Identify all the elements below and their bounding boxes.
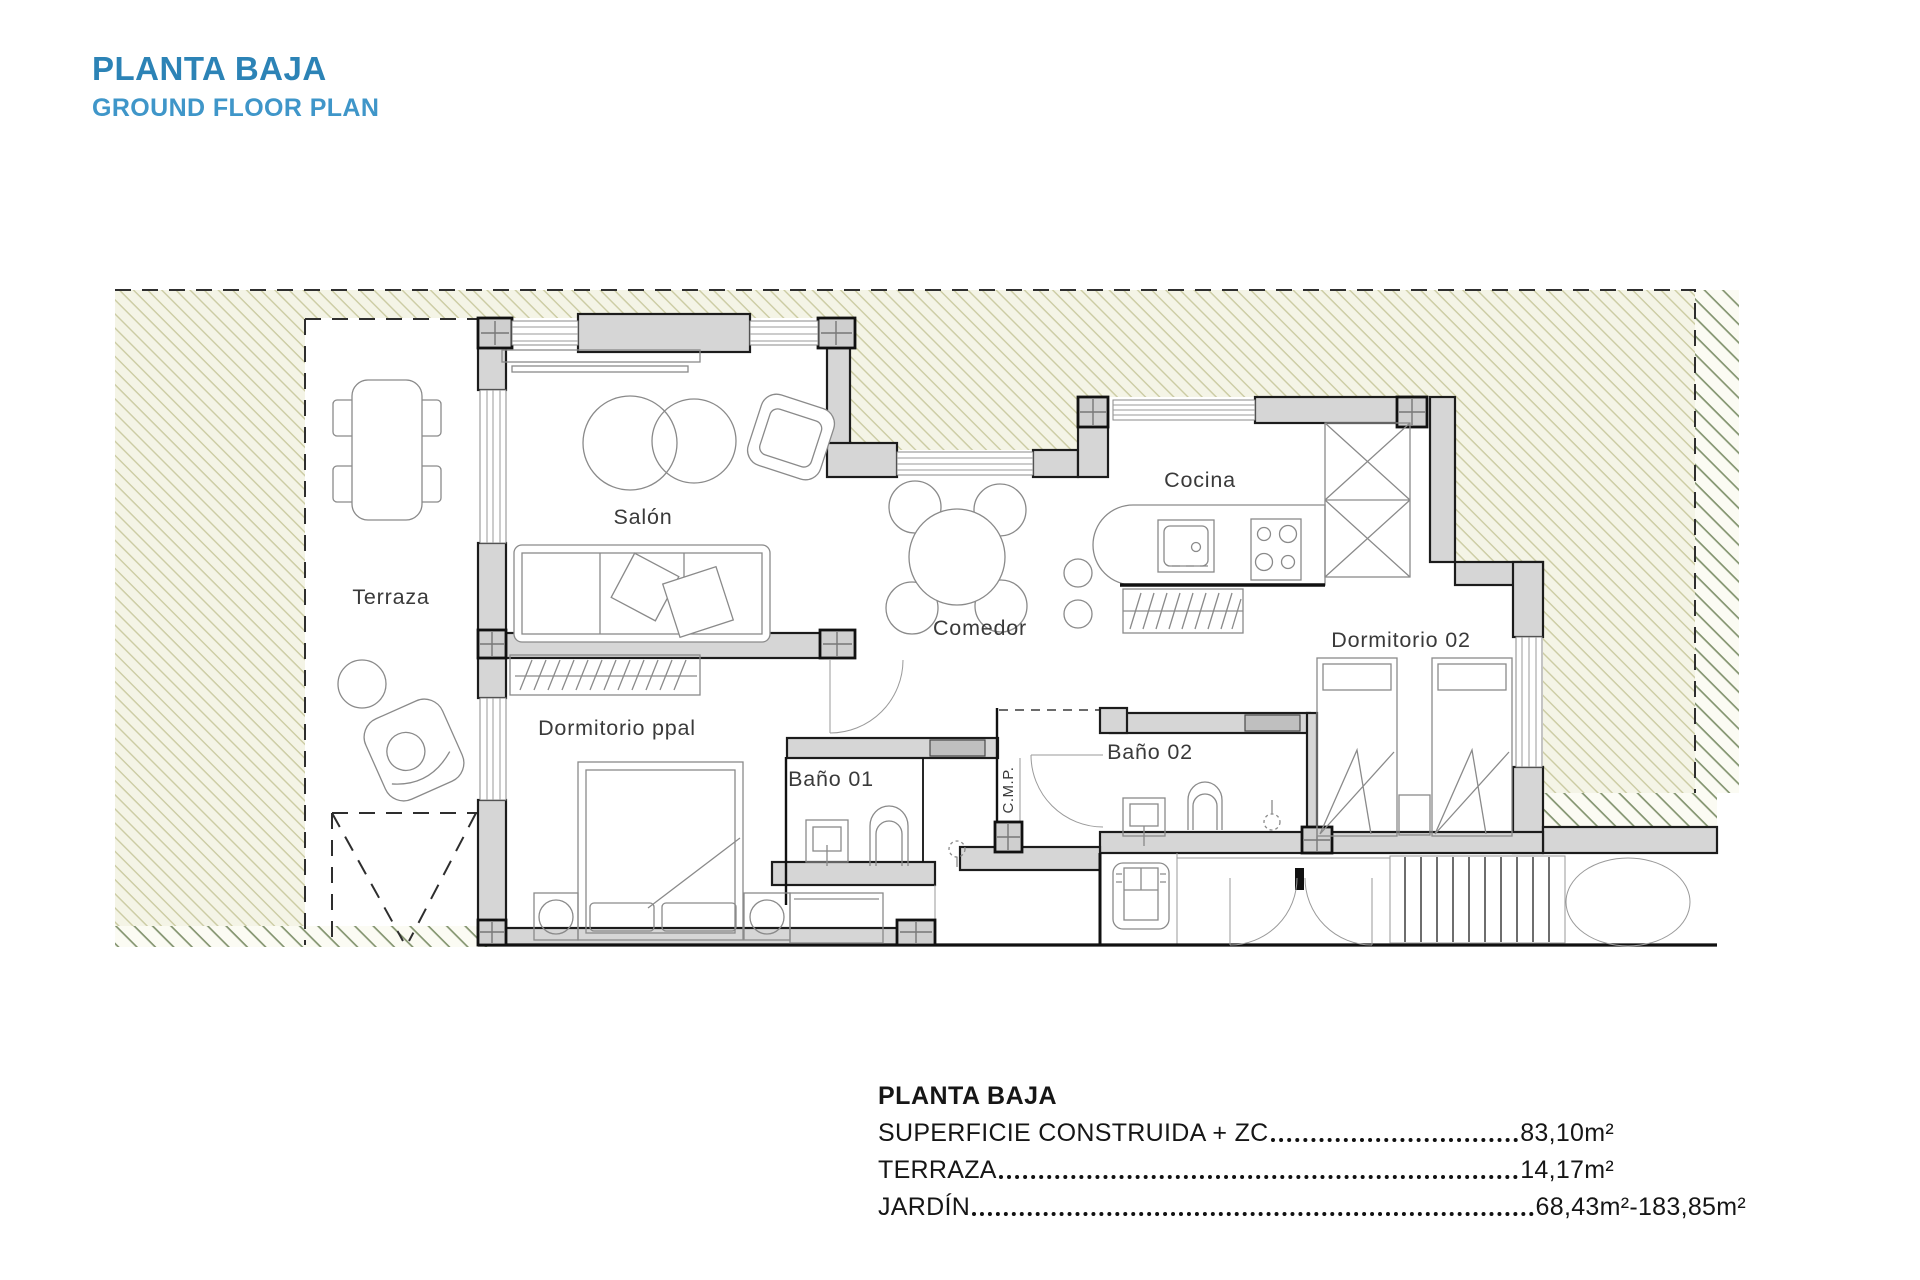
coffee-tables [583,396,736,490]
legend-row-label: SUPERFICIE CONSTRUIDA + ZC [878,1119,1269,1148]
room-label-bano01: Baño 01 [788,767,874,791]
exterior-stairs [1390,856,1565,943]
legend-row-superficie: SUPERFICIE CONSTRUIDA + ZC 83,10m² [878,1119,1614,1148]
legend-row-label: JARDÍN [878,1193,970,1222]
comedor-furniture [886,481,1027,634]
salon-furniture [502,350,839,642]
room-label-cmp: C.M.P. [1000,767,1017,814]
dotted-leader [972,1212,1533,1216]
column-cross-icon [995,822,1022,852]
bano01-fixtures [806,806,965,867]
legend-row-value: 14,17m² [1520,1156,1614,1185]
single-bed [1317,658,1397,836]
legend-row-value: 83,10m² [1520,1119,1614,1148]
legend-row-label: TERRAZA [878,1156,997,1185]
column-cross-icon [478,630,506,658]
entrance-double-door [1230,868,1372,945]
wardrobe [1325,423,1410,577]
water-heater-unit [1113,863,1169,929]
window [1113,400,1255,420]
bathroom-sink [806,820,848,866]
room-label-dormitorio02: Dormitorio 02 [1331,628,1470,652]
window [750,321,818,345]
window [480,390,506,543]
room-label-dormitorio-ppal: Dormitorio ppal [538,716,696,740]
window [897,452,1033,475]
toilet [1188,782,1222,830]
door-swing [830,660,903,733]
column-cross-icon [478,318,512,348]
single-bed [1432,658,1512,836]
double-bed [578,762,743,940]
window [480,698,506,800]
column-cross-icon [818,318,855,348]
bar-stool [1064,559,1092,587]
column-cross-icon [478,920,506,945]
cocina-fixtures [1064,505,1325,633]
room-label-salon: Salón [614,505,673,529]
legend-row-terraza: TERRAZA 14,17m² [878,1156,1614,1185]
door-swing [1031,755,1103,827]
armchair [743,390,838,484]
legend-row-value: 68,43m²-183,85m² [1536,1193,1746,1222]
area-legend: PLANTA BAJA SUPERFICIE CONSTRUIDA + ZC 8… [878,1082,1746,1222]
round-dining-table [909,509,1005,605]
dotted-leader [999,1175,1518,1179]
dotted-leader [1271,1138,1519,1142]
terrace-side-table [338,660,386,708]
room-label-terraza: Terraza [352,585,429,609]
column-cross-icon [820,630,855,658]
kitchen-sideboard [1123,589,1243,633]
kitchen-counter [1093,505,1325,585]
column-cross-icon [897,920,935,945]
toilet [870,806,908,866]
sofa [514,545,770,642]
terrace-dining-table [352,380,422,520]
turning-circle [1566,858,1690,946]
room-label-cocina: Cocina [1164,468,1236,492]
dormitorio-ppal-furniture [510,655,790,940]
column-cross-icon [1078,397,1108,427]
bar-stool [1064,600,1092,628]
terrace-lounge-chair [358,693,471,808]
window [1516,637,1542,767]
room-label-comedor: Comedor [933,616,1027,640]
shower-head-icon [1264,800,1280,830]
legend-title: PLANTA BAJA [878,1082,1746,1111]
tv-console [502,350,700,372]
nightstand [1399,795,1430,835]
window [512,321,578,345]
legend-row-jardin: JARDÍN 68,43m²-183,85m² [878,1193,1746,1222]
wardrobe-rail [510,655,700,695]
room-label-bano02: Baño 02 [1107,740,1193,764]
